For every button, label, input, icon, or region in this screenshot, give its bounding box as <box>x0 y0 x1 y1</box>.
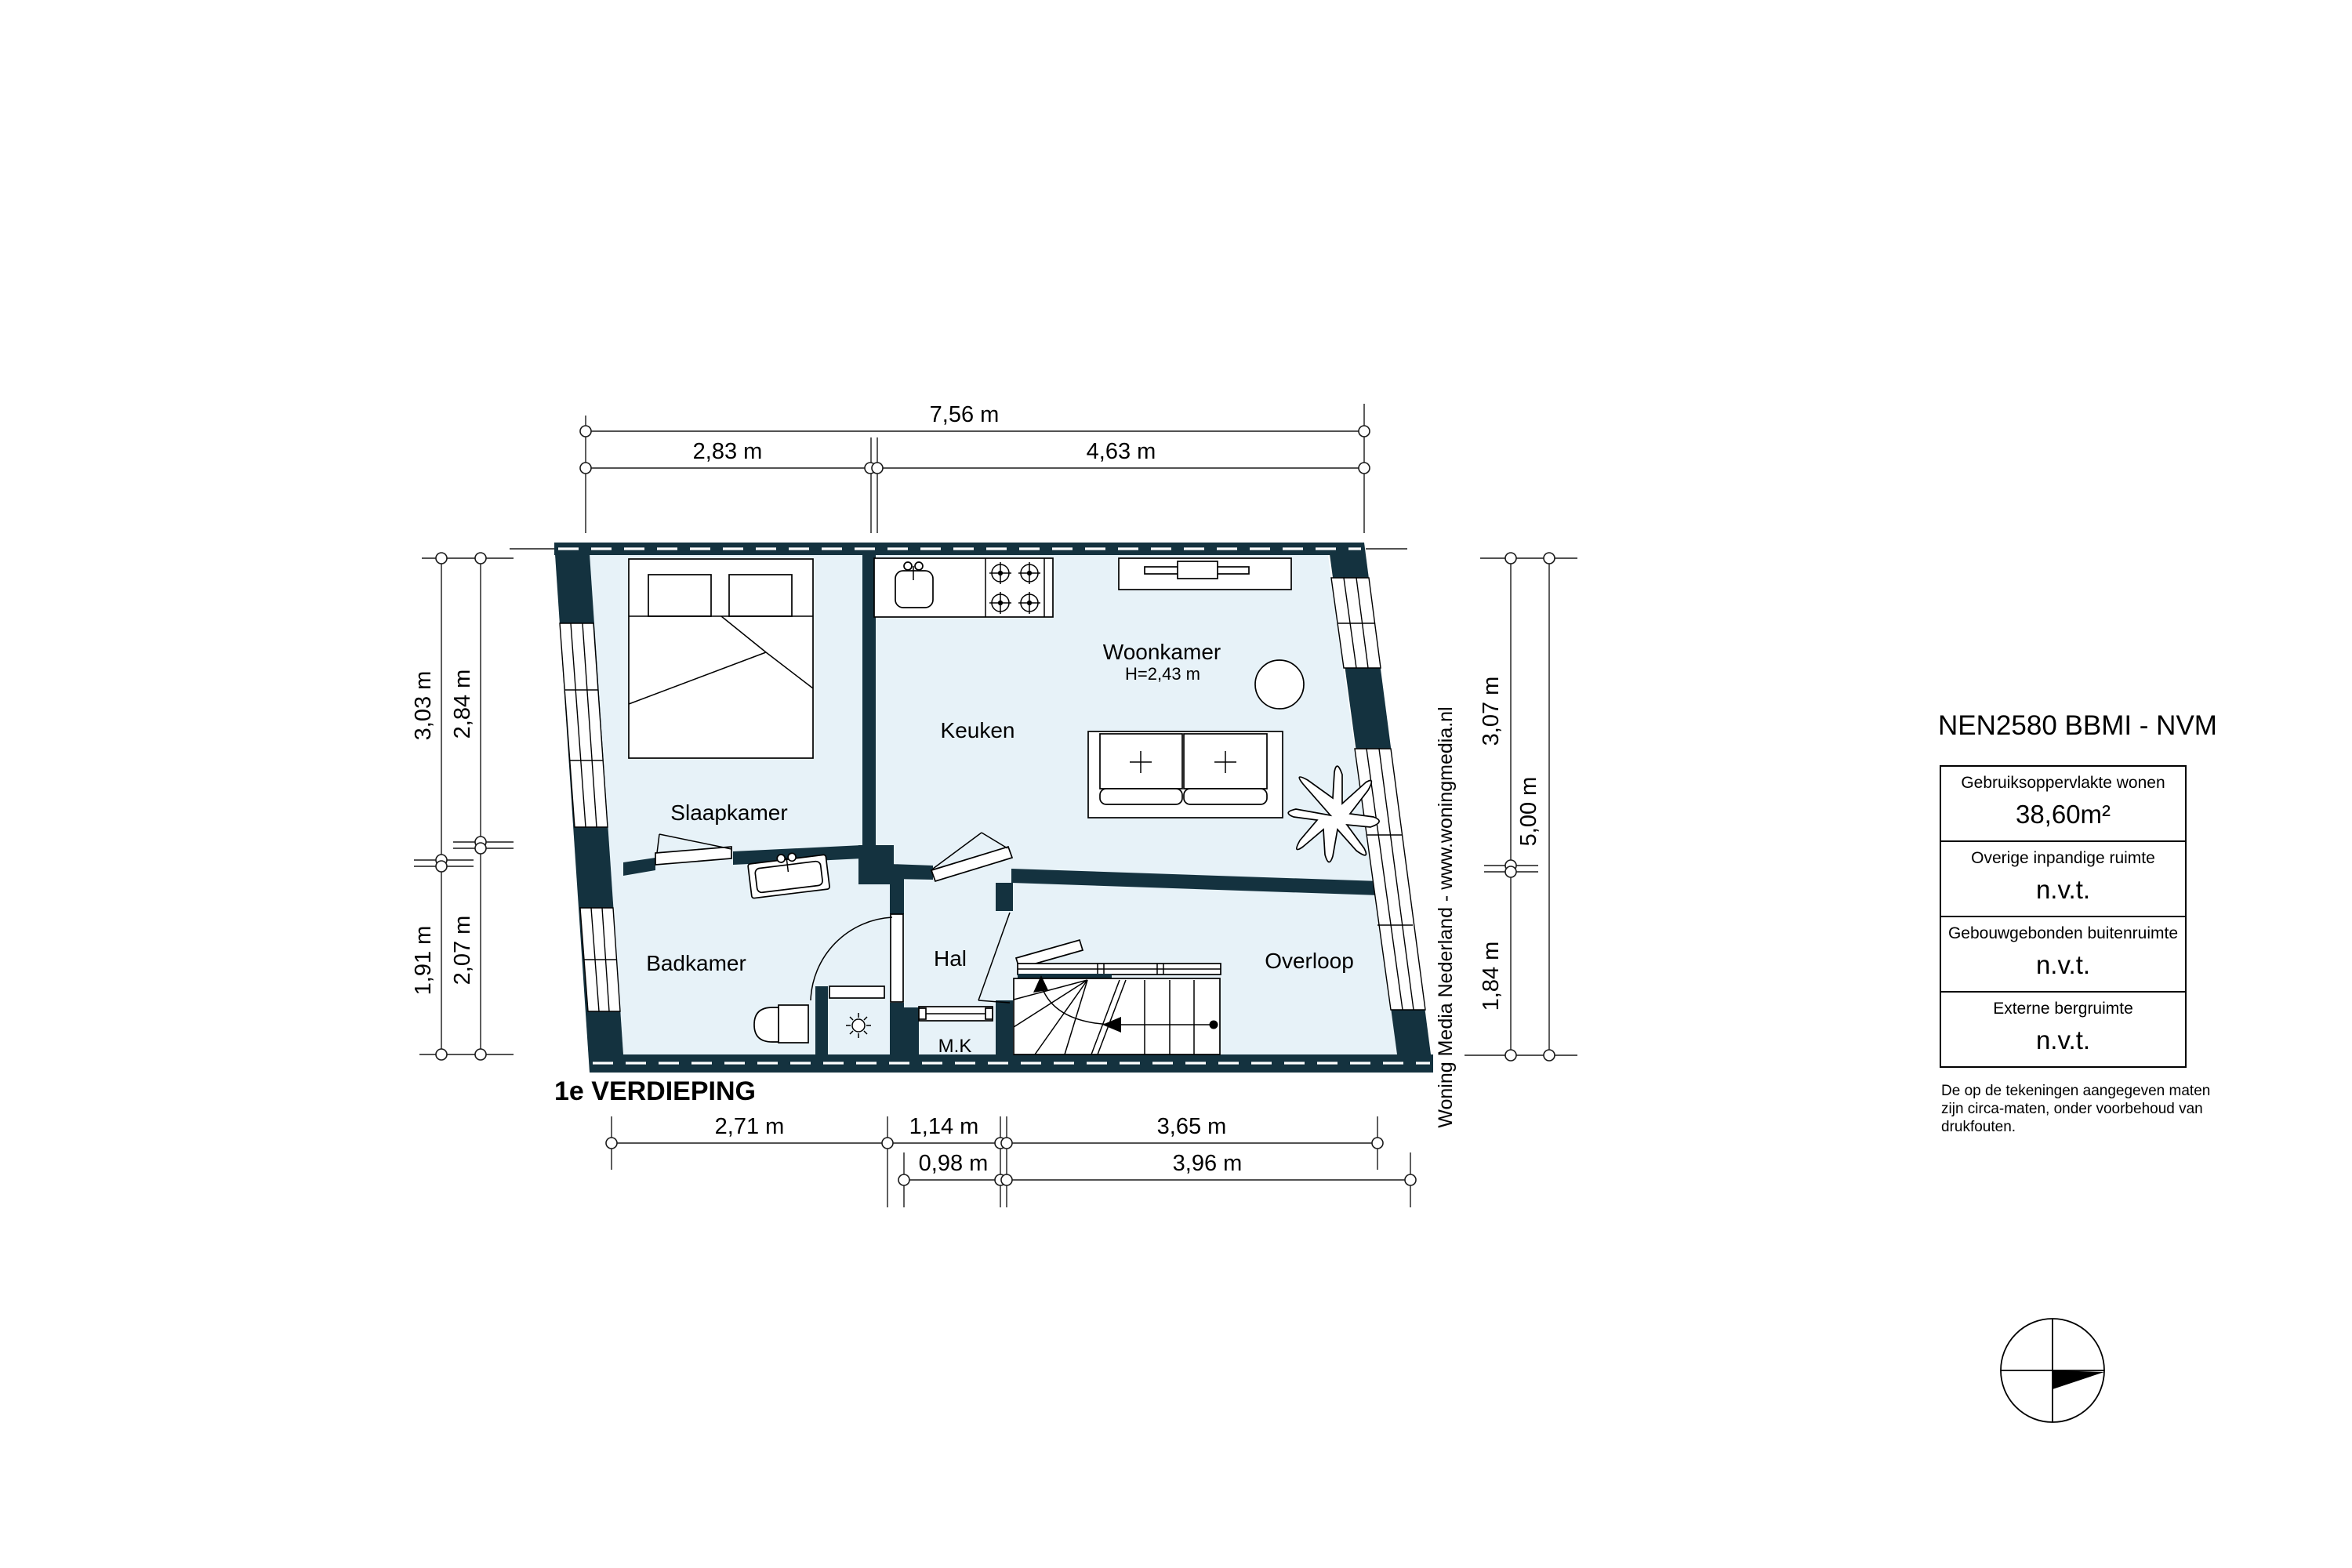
dim-bottom-3: 3,65 m <box>1157 1114 1227 1139</box>
legend-row: Gebruiksoppervlakte wonen 38,60m² <box>1941 767 2185 840</box>
sofa <box>1088 731 1283 818</box>
legend-row-value: 38,60m² <box>1941 800 2185 829</box>
watermark: Woning Media Nederland - www.woningmedia… <box>1435 706 1457 1127</box>
compass-icon <box>2001 1319 2104 1422</box>
dim-bottom-5: 3,96 m <box>1173 1151 1243 1176</box>
dim-bottom-2: 1,14 m <box>909 1114 979 1139</box>
dim-right-outer: 5,00 m <box>1516 777 1541 847</box>
dim-left-outer-bottom: 1,91 m <box>411 926 436 996</box>
dim-total-width: 7,56 m <box>930 402 1000 427</box>
kitchen-counter <box>874 558 1053 617</box>
legend-row-value: n.v.t. <box>1941 1025 2185 1055</box>
legend-row: Overige inpandige ruimte n.v.t. <box>1941 840 2185 916</box>
room-label-woonkamer: Woonkamer <box>1103 640 1221 664</box>
sideboard <box>1119 558 1291 590</box>
legend-row-value: n.v.t. <box>1941 950 2185 980</box>
dim-right-inner-bottom: 1,84 m <box>1479 942 1504 1011</box>
dim-top-right: 4,63 m <box>1087 439 1156 464</box>
legend-row-label: Gebouwgebonden buitenruimte <box>1941 917 2185 943</box>
dim-right-inner-top: 3,07 m <box>1479 677 1504 746</box>
dim-bottom-1: 2,71 m <box>715 1114 785 1139</box>
side-table <box>1255 660 1304 709</box>
legend-row-label: Overige inpandige ruimte <box>1941 842 2185 868</box>
legend-row-label: Externe bergruimte <box>1941 993 2185 1018</box>
room-label-hal: Hal <box>934 946 967 971</box>
dim-left-inner-bottom: 2,07 m <box>450 916 475 985</box>
legend-row-label: Gebruiksoppervlakte wonen <box>1941 767 2185 793</box>
legend-row: Gebouwgebonden buitenruimte n.v.t. <box>1941 916 2185 991</box>
bed <box>629 559 813 758</box>
room-label-overloop: Overloop <box>1265 949 1354 973</box>
toilet <box>754 1005 808 1043</box>
room-label-woonkamer-height: H=2,43 m <box>1125 664 1200 684</box>
door-mk <box>919 1007 993 1021</box>
legend-box: Gebruiksoppervlakte wonen 38,60m² Overig… <box>1940 765 2187 1068</box>
legend-row-value: n.v.t. <box>1941 875 2185 905</box>
legend-row: Externe bergruimte n.v.t. <box>1941 991 2185 1066</box>
room-label-keuken: Keuken <box>941 718 1015 742</box>
legend-disclaimer: De op de tekeningen aangegeven maten zij… <box>1941 1082 2233 1137</box>
floor-title: 1e VERDIEPING <box>554 1076 756 1106</box>
room-label-badkamer: Badkamer <box>646 951 746 975</box>
dim-top-left: 2,83 m <box>693 439 763 464</box>
dim-left-inner-top: 2,84 m <box>450 670 475 739</box>
door-badkamer-stub <box>829 986 884 998</box>
room-label-mk: M.K <box>938 1036 972 1057</box>
dim-left-outer-top: 3,03 m <box>411 671 436 741</box>
room-label-slaapkamer: Slaapkamer <box>670 800 787 825</box>
legend-title: NEN2580 BBMI - NVM <box>1925 710 2230 742</box>
dim-bottom-4: 0,98 m <box>919 1151 989 1176</box>
